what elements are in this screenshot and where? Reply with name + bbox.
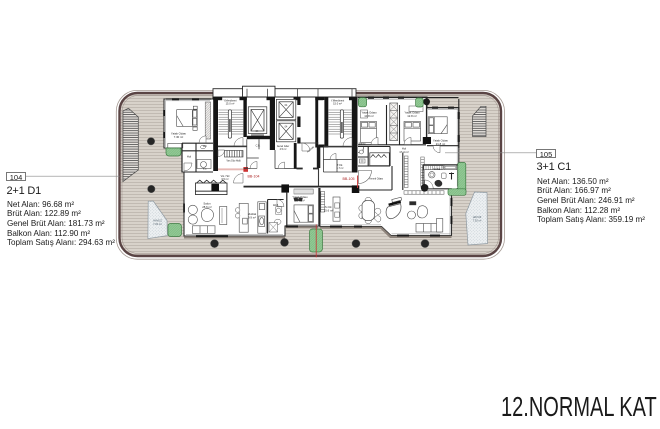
svg-text:Eb.B.: Eb.B.: [273, 205, 279, 207]
svg-text:Mutfak: Mutfak: [433, 168, 441, 171]
svg-text:BB-104: BB-104: [248, 175, 260, 179]
svg-text:15.0 m²: 15.0 m²: [226, 102, 235, 106]
svg-text:WC: WC: [203, 146, 207, 148]
svg-text:4.5 m²: 4.5 m²: [280, 148, 287, 151]
svg-text:9.9 m²: 9.9 m²: [248, 215, 256, 219]
svg-text:HAVUZ: HAVUZ: [153, 219, 162, 223]
svg-text:Yemek Odası: Yemek Odası: [369, 178, 384, 181]
svg-text:Hol: Hol: [187, 155, 192, 159]
svg-text:12.8 m²: 12.8 m²: [295, 198, 305, 202]
svg-text:Yan.Güv.Holü: Yan.Güv.Holü: [226, 160, 241, 163]
svg-text:7.30 m²: 7.30 m²: [174, 135, 184, 139]
svg-text:B.D.: B.D.: [203, 169, 208, 171]
svg-text:C.B.: C.B.: [256, 145, 261, 148]
svg-text:17.4 m²: 17.4 m²: [399, 150, 409, 154]
svg-text:BB-105: BB-105: [343, 177, 355, 181]
svg-text:28.6 m²: 28.6 m²: [202, 205, 212, 209]
svg-text:25.6 m²: 25.6 m²: [324, 208, 334, 212]
svg-text:HAVUZ: HAVUZ: [473, 215, 482, 219]
svg-text:10.8 m²: 10.8 m²: [364, 114, 374, 118]
svg-text:6.5 m²: 6.5 m²: [221, 178, 228, 181]
svg-text:7.00 m²: 7.00 m²: [153, 222, 162, 226]
svg-text:1.7 m²: 1.7 m²: [337, 167, 344, 170]
svg-text:7.30 m²: 7.30 m²: [473, 218, 482, 222]
svg-text:21.8 m²: 21.8 m²: [436, 142, 446, 146]
svg-text:12.8 m²: 12.8 m²: [407, 114, 417, 118]
svg-text:15.0 m²: 15.0 m²: [333, 102, 342, 106]
svg-text:Banyo: Banyo: [359, 143, 366, 146]
